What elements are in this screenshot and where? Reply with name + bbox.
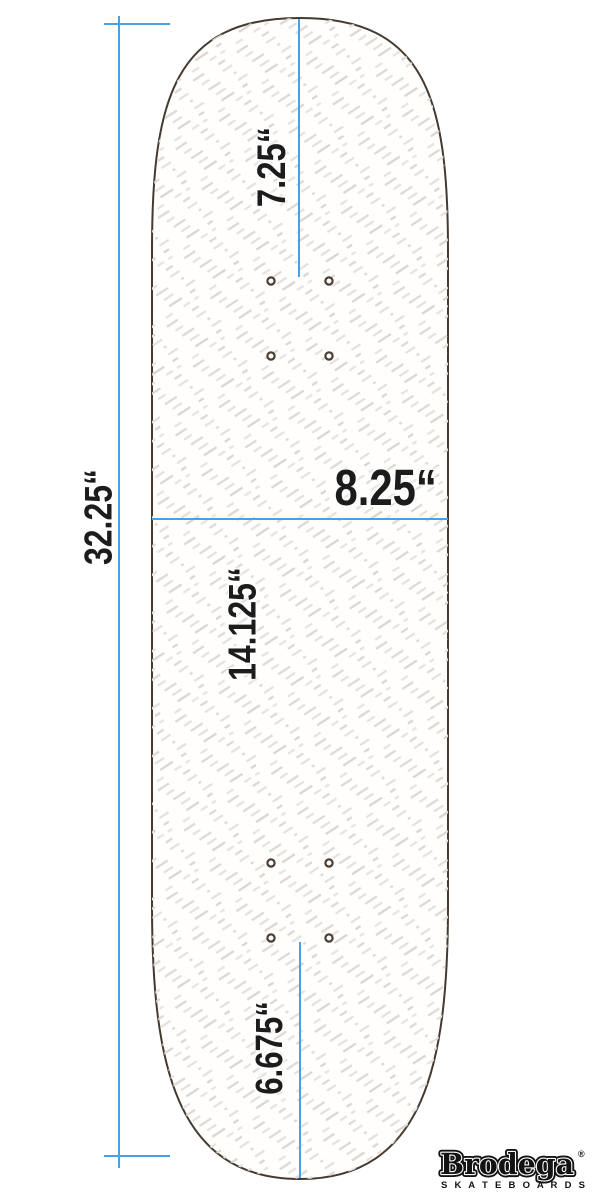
- brodega-logo: Brodega Brodega ® S K A T E B O A R D S: [438, 1144, 596, 1194]
- truck-hole: [267, 859, 274, 866]
- registered-trademark-icon: ®: [578, 1149, 585, 1159]
- truck-hole: [325, 352, 332, 359]
- truck-hole: [325, 934, 332, 941]
- deck-width-label: 8.25“: [335, 462, 437, 513]
- brand-name: Brodega: [440, 1147, 574, 1181]
- deck-drawing: [0, 0, 600, 1200]
- brand-subtitle: S K A T E B O A R D S: [441, 1180, 585, 1191]
- deck-dimension-diagram: 32.25“ 7.25“ 8.25“ 14.125“ 6.675“ Brodeg…: [0, 0, 600, 1200]
- truck-hole: [325, 859, 332, 866]
- truck-hole: [325, 277, 332, 284]
- truck-hole: [267, 352, 274, 359]
- truck-hole: [267, 277, 274, 284]
- truck-hole: [267, 934, 274, 941]
